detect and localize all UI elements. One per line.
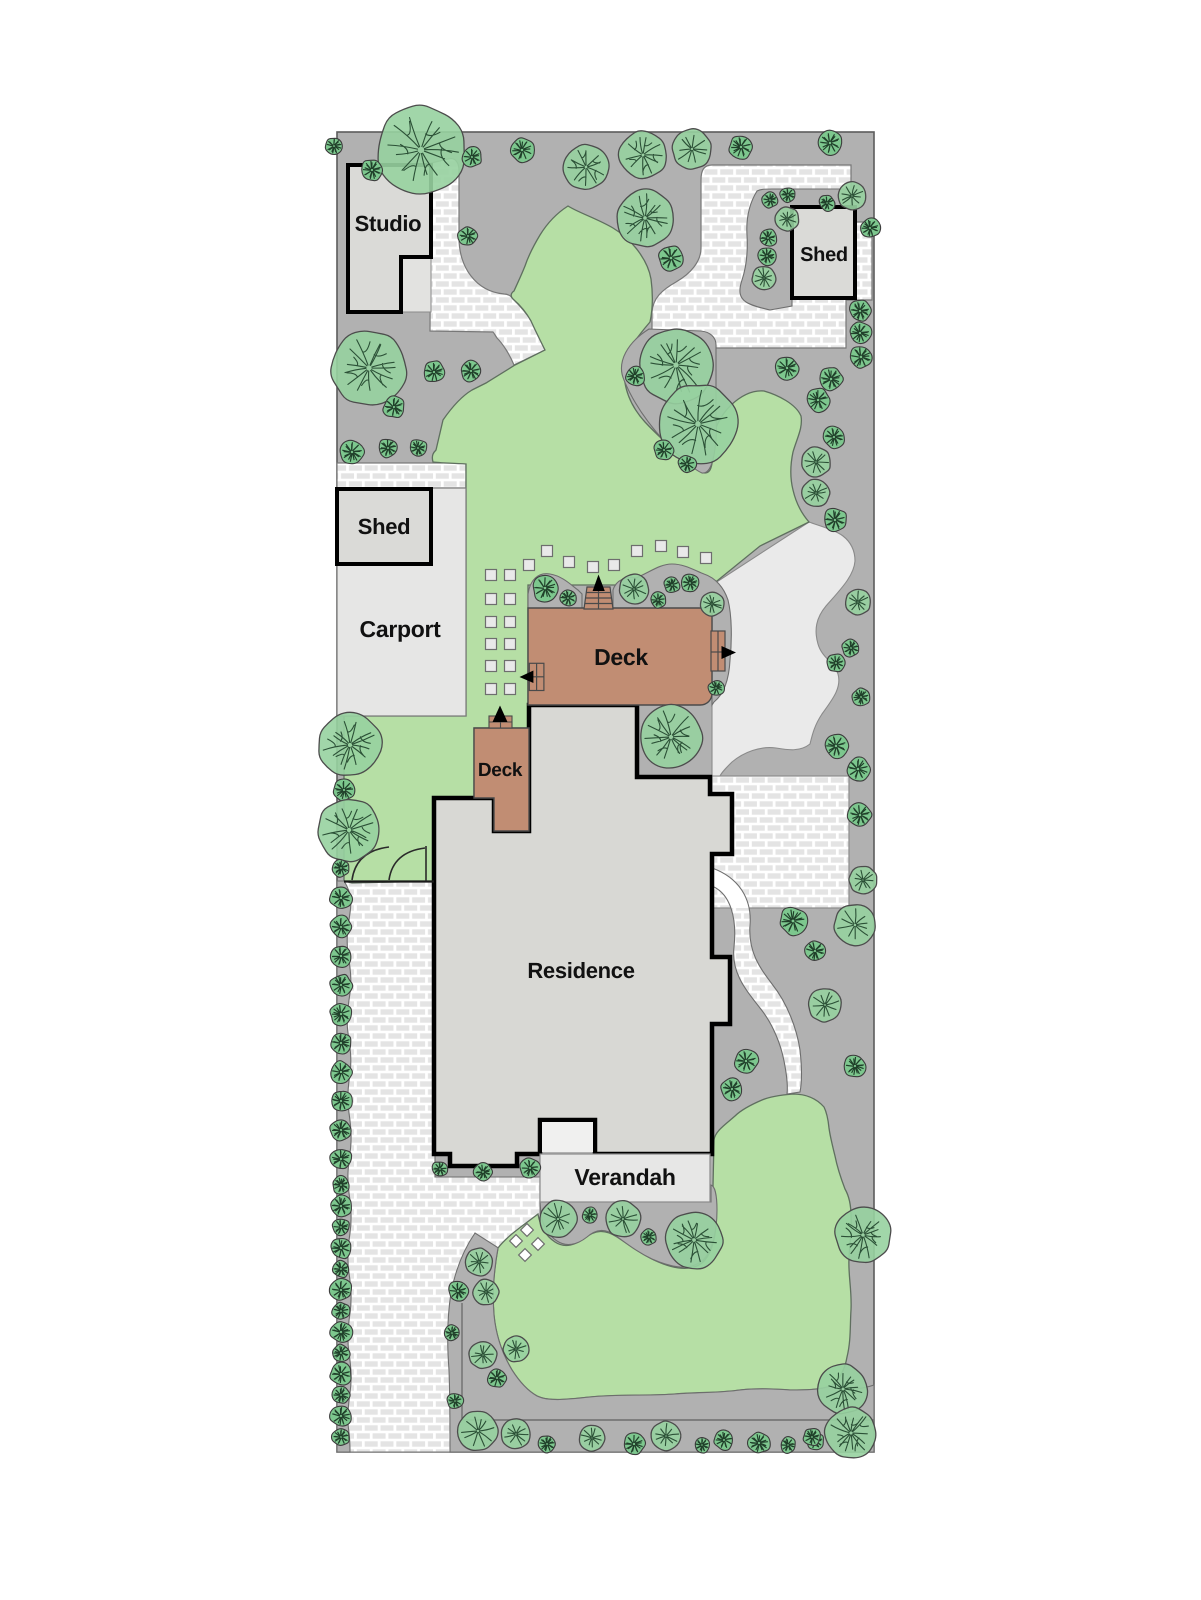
svg-text:Carport: Carport bbox=[360, 616, 442, 642]
svg-text:Shed: Shed bbox=[800, 244, 848, 266]
svg-text:Deck: Deck bbox=[478, 760, 523, 781]
svg-text:Studio: Studio bbox=[355, 211, 422, 236]
svg-text:Verandah: Verandah bbox=[574, 1164, 675, 1190]
svg-text:Shed: Shed bbox=[358, 514, 411, 539]
svg-text:Residence: Residence bbox=[527, 958, 634, 983]
svg-text:Deck: Deck bbox=[594, 644, 648, 670]
